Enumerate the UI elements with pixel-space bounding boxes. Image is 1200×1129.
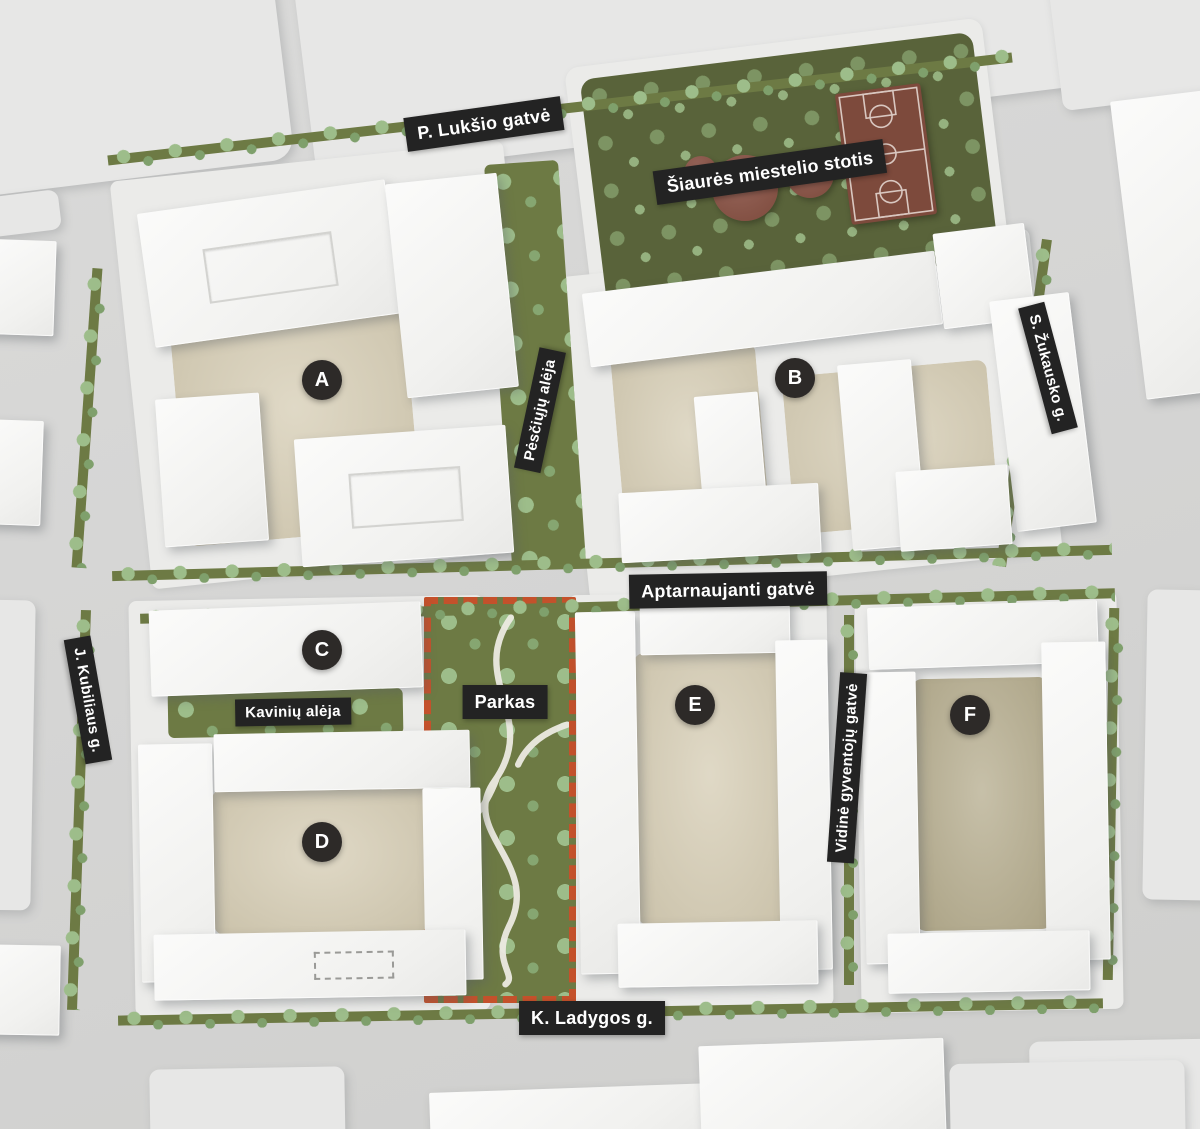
context-building [1110, 90, 1200, 399]
building-d [214, 730, 471, 792]
context-building [429, 1083, 716, 1129]
block-marker-a: A [302, 360, 342, 400]
street-label-k-ladygos: K. Ladygos g. [519, 1001, 665, 1035]
roof-inset [202, 231, 338, 304]
context-building [0, 419, 44, 526]
roof-inset [348, 466, 464, 529]
building-f [861, 672, 920, 965]
building-b [618, 483, 821, 563]
tree-row [56, 267, 119, 569]
building-b [895, 464, 1012, 552]
block-marker-f: F [950, 695, 990, 735]
context-building [0, 189, 62, 241]
block-marker-c: C [302, 630, 342, 670]
building-f [1041, 641, 1111, 960]
street-label-aptarnaujanti: Aptarnaujanti gatvė [629, 571, 827, 608]
building-d [153, 929, 466, 1000]
context-building [698, 1038, 946, 1129]
building-c [149, 601, 424, 696]
context-building [1142, 589, 1200, 900]
area-label-parkas: Parkas [463, 685, 548, 719]
masterplan-rendering: P. Lukšio gatvė Šiaurės miestelio stotis… [0, 0, 1200, 1129]
building-f [887, 930, 1090, 994]
planned-footprint-outline [314, 951, 394, 980]
building-e [575, 612, 641, 975]
context-building [0, 600, 36, 911]
building-a [294, 425, 514, 567]
block-marker-e: E [675, 685, 715, 725]
street-label-kaviniu: Kavinių alėja [235, 697, 351, 726]
building-a [385, 173, 519, 399]
context-building [949, 1060, 1185, 1129]
block-marker-b: B [775, 358, 815, 398]
context-building [0, 239, 57, 336]
building-a [155, 393, 269, 548]
context-building [149, 1066, 346, 1129]
block-marker-d: D [302, 822, 342, 862]
building-e [617, 920, 818, 987]
